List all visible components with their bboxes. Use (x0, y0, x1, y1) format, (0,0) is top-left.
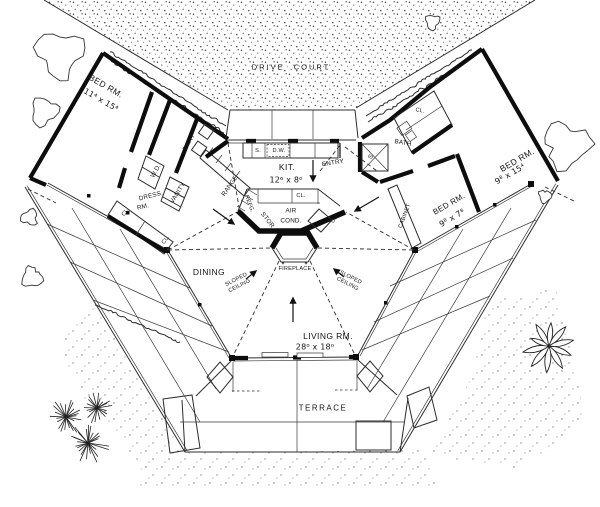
vanity-label: VANITY (169, 181, 188, 205)
floor-plan-sheet: DRIVE COURT BED RM. 11⁴ x 15⁴ BATH W.D. … (0, 0, 600, 507)
fireplace (272, 233, 317, 264)
closet-label: CL. (121, 206, 131, 217)
storage-label: STOR. (259, 211, 277, 231)
living-room-label: LIVING RM. (303, 331, 353, 341)
living-room-dims: 28⁰ x 18⁰ (296, 343, 334, 352)
drive-court-label: DRIVE COURT (252, 63, 331, 72)
fireplace-label: FIREPLACE (279, 266, 312, 272)
sink-label: S. (255, 148, 261, 154)
closet-label: CL. (296, 193, 306, 199)
grass-plant (71, 425, 109, 462)
bath-right-label: BATH (394, 138, 412, 148)
air-cond-label: AIR (285, 208, 296, 215)
closet-label: CL. (161, 234, 171, 245)
floor-plan-drawing: DRIVE COURT BED RM. 11⁴ x 15⁴ BATH W.D. … (0, 0, 600, 507)
terrace-label: TERRACE (299, 404, 348, 413)
dishwasher-label: D.W. (273, 148, 286, 154)
air-cond-label2: COND. (280, 218, 301, 225)
right-bedroom-partitions (380, 154, 479, 248)
shower-label: S (367, 153, 375, 161)
dining-label: DINING (193, 267, 225, 277)
closet-label: CL. (415, 107, 425, 115)
entry-label: ENTRY (321, 158, 345, 168)
washer-dryer-label: W.D. (149, 163, 162, 179)
terrace (180, 360, 408, 452)
dressing-room-label2: RM. (136, 202, 150, 212)
bath-left-label: BATH (182, 134, 197, 153)
dressing-room-label: DRESS. (138, 190, 164, 203)
grass-plant (50, 400, 82, 432)
kitchen-dims: 12⁶ x 8⁰ (269, 176, 302, 185)
kitchen-label: KIT. (279, 162, 295, 172)
